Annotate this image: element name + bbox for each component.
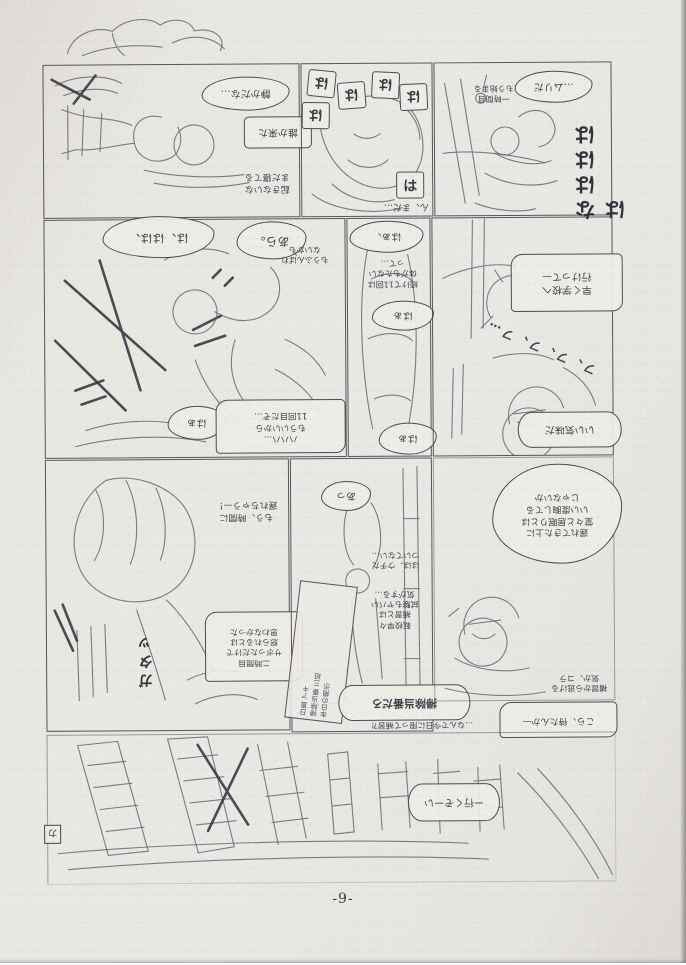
panel-10: ー行くぞーい [47,731,617,884]
panel-1: 静かだな… 誰か来た 起きないな まだ寝てる [42,63,300,219]
pant-bubble: は [306,69,337,99]
speech-bubble: いい気味だ [518,411,622,448]
clatter-sound-vertical: ガタッ [135,624,156,688]
pant-bubble: は [399,83,428,111]
artwork-rotated-180: 静かだな… 誰か来た 起きないな まだ寝てる は は は は は は ん、まだ… [0,0,686,965]
speech-bubble: ハハハ… もういいから 11回目だぞ… [215,399,345,454]
panel-7: もう、時間に 遅れちゃう—！ 二時間目 サボっただけで 怒られるとは 思わなかっ… [45,458,291,731]
panel-4: は、はは、 あら。 もうふんばれ ないかも はぁ ハハハ… もういいから 11回… [43,218,346,459]
speech-bubble: 二時間目 サボっただけで 怒られるとは 思わなかった [205,611,303,682]
pant-bubble: は [302,102,330,129]
panel-8: あっ はは、ウチだ ついてない… 転校早々 補習とは 試験もヤバい 気がする… … [290,457,434,732]
pant-bubble: は [337,81,367,110]
page-number: -9- [0,891,686,907]
sketch-cityscape [48,732,616,883]
breath-sound-vertical: なはははは [571,110,632,220]
panel-5: はぁ、 続けて11回は 体がもたない って… はぁ はぁ [346,217,431,457]
panel-2: は は は は は は ん、まだ… [300,62,433,217]
scan-right-edge-shadow [680,0,686,963]
speech-bubble: 早く学校へ 行けって— [511,253,623,312]
scanned-manga-page: 静かだな… 誰か来た 起きないな まだ寝てる は は は は は は ん、まだ… [0,0,686,963]
pant-bubble: は [371,71,400,99]
margin-sketch-hand [52,2,282,63]
corner-panel-mark: カ [44,825,61,844]
scan-bottom-edge-shadow [0,959,686,963]
pant-bubble: は [396,171,424,198]
panel-3: …ムリだ 一時間目 もう始まる なはははは [433,61,612,216]
panel-6: 早く学校へ 行けって— フ、フ、フ、フ… いい気味だ [431,216,613,456]
speech-bubble: ー行くぞーい [408,783,500,822]
